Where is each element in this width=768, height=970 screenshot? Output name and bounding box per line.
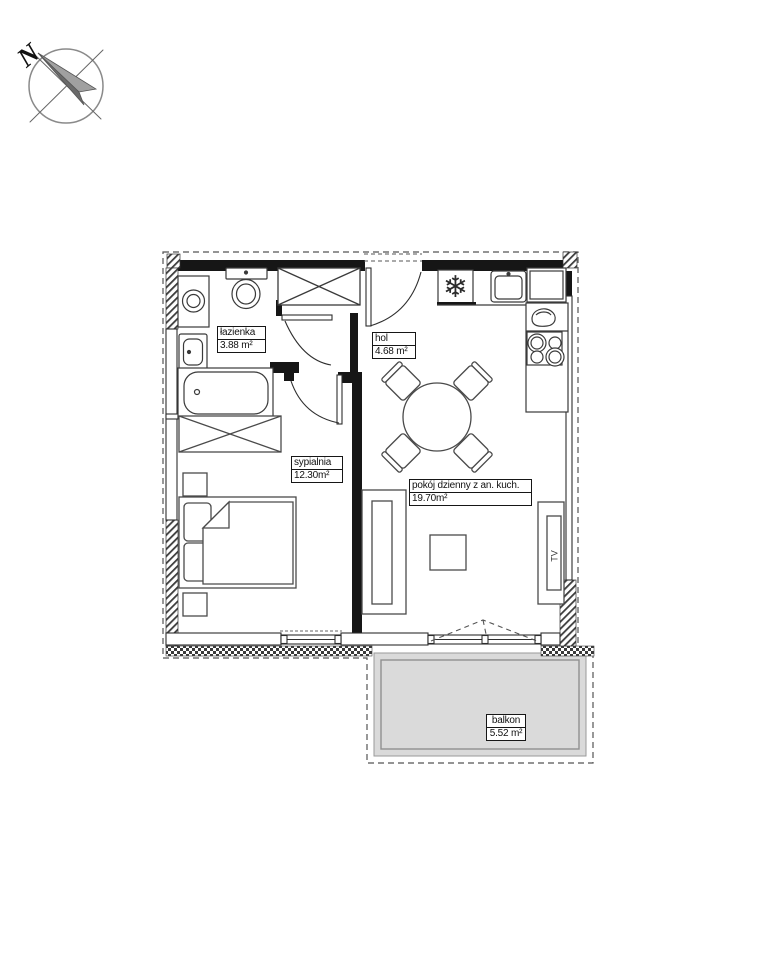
compass-rose: N — [10, 36, 103, 123]
wall-bathroom-right — [350, 313, 358, 373]
room-area: 19.70m² — [410, 493, 531, 505]
room-label-bedroom: sypialnia 12.30m² — [291, 456, 343, 483]
dining-table — [403, 383, 471, 451]
room-label-bathroom: łazienka 3.88 m² — [217, 326, 266, 353]
door-jamb — [284, 373, 294, 381]
balcony-floor — [374, 653, 586, 756]
toilet — [226, 268, 267, 309]
room-area: 4.68 m² — [373, 346, 415, 358]
room-area: 3.88 m² — [218, 340, 265, 352]
corner-cabinet — [527, 268, 566, 302]
column-left-lower — [166, 520, 178, 646]
tv-label: TV — [550, 550, 560, 562]
column-top-right — [563, 252, 577, 268]
living-room-furniture: TV — [362, 490, 564, 614]
washing-machine — [178, 276, 209, 327]
room-area: 5.52 m² — [487, 728, 525, 740]
wardrobe-bedroom — [179, 416, 281, 452]
nightstand — [183, 593, 207, 616]
wall-bedroom-top — [270, 362, 299, 373]
insulation-strip — [541, 646, 594, 656]
column-left-upper — [166, 268, 178, 329]
wardrobe-hall — [278, 268, 360, 305]
bathtub — [178, 368, 273, 418]
balcony — [374, 653, 586, 756]
wall-bottom-3 — [541, 633, 560, 645]
room-name: sypialnia — [292, 457, 342, 470]
room-label-hall: hol 4.68 m² — [372, 332, 416, 359]
bedroom-window — [280, 631, 342, 644]
bathroom-door — [282, 315, 332, 365]
entrance-door — [364, 254, 422, 326]
dining-set — [381, 361, 493, 473]
nightstand — [183, 473, 207, 496]
room-name: hol — [373, 333, 415, 346]
bathroom-sink — [179, 334, 207, 370]
coffee-table — [430, 535, 466, 570]
bedroom-door — [291, 375, 342, 424]
fridge: ❄ — [437, 270, 476, 305]
room-label-balcony: balkon 5.52 m² — [486, 714, 526, 741]
sofa — [362, 490, 406, 614]
kettle — [532, 309, 555, 327]
room-area: 12.30m² — [292, 470, 342, 482]
wall-bottom-1 — [166, 633, 281, 645]
room-name: pokój dzienny z an. kuch. — [410, 480, 531, 493]
insulation-strip — [166, 646, 372, 656]
room-label-living-room: pokój dzienny z an. kuch. 19.70m² — [409, 479, 532, 506]
column-top-left — [167, 254, 180, 268]
floor-plan-drawing: N — [0, 0, 768, 970]
bed — [179, 497, 296, 588]
wall-left-thin — [166, 329, 177, 520]
kitchen-sink — [491, 271, 526, 302]
bedroom-furniture — [179, 416, 296, 616]
tv-cabinet: TV — [538, 502, 564, 604]
room-name: łazienka — [218, 327, 265, 340]
snowflake-icon: ❄ — [443, 271, 468, 304]
stove-hob — [527, 332, 564, 366]
room-name: balkon — [487, 715, 525, 728]
floor-plan-page: N — [0, 0, 768, 970]
balcony-door-window — [428, 620, 541, 644]
wall-bedroom-living — [352, 372, 362, 637]
wall-bottom-2 — [341, 633, 428, 645]
